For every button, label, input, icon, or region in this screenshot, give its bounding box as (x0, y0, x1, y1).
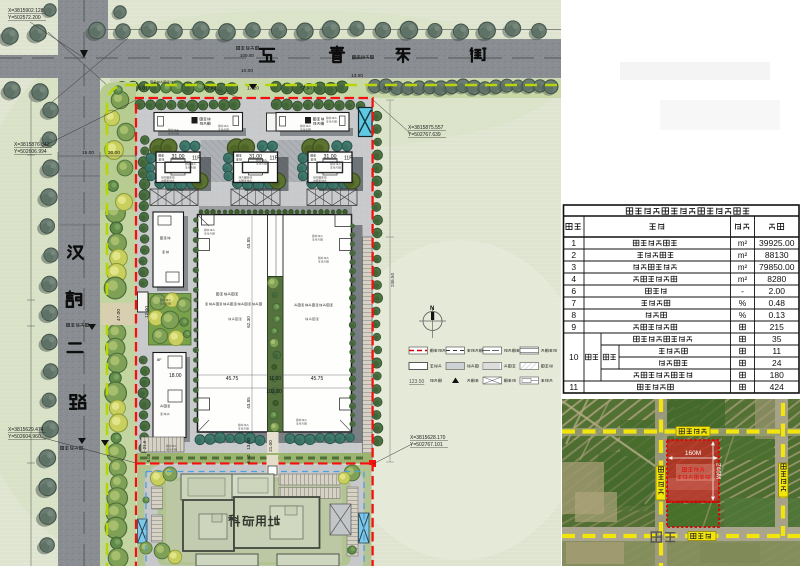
svg-text:8.00: 8.00 (146, 453, 151, 462)
svg-text:160M: 160M (685, 450, 701, 457)
svg-text:%: % (739, 298, 747, 308)
svg-text:8.92: 8.92 (383, 86, 393, 92)
svg-text:%: % (739, 310, 747, 320)
svg-text:Y=502767.639: Y=502767.639 (408, 132, 441, 138)
svg-text:39925.00: 39925.00 (759, 238, 795, 248)
svg-text:11F: 11F (344, 156, 352, 162)
svg-text:8280: 8280 (767, 274, 786, 284)
svg-text:12.00: 12.00 (144, 306, 150, 318)
svg-text:m²: m² (738, 275, 748, 284)
svg-text:13.00: 13.00 (351, 73, 363, 79)
svg-text:24: 24 (772, 358, 782, 368)
svg-text:13.00: 13.00 (246, 438, 251, 450)
svg-text:Y=502572.200: Y=502572.200 (8, 15, 41, 21)
svg-text:X=3815902.128: X=3815902.128 (8, 8, 44, 14)
svg-text:6.00: 6.00 (246, 454, 251, 463)
svg-text:100.00: 100.00 (240, 53, 254, 58)
svg-text:17.20: 17.20 (247, 86, 259, 92)
svg-text:Y=502606.994: Y=502606.994 (14, 149, 47, 155)
svg-text:18.00: 18.00 (169, 373, 182, 379)
svg-text:4: 4 (571, 274, 576, 284)
svg-text:45.75: 45.75 (226, 376, 239, 382)
svg-text:45.75: 45.75 (311, 376, 324, 382)
svg-text:123.50: 123.50 (409, 379, 425, 385)
svg-text:43.85: 43.85 (246, 397, 251, 409)
svg-text:31.00: 31.00 (324, 154, 337, 160)
svg-text:0.13: 0.13 (768, 310, 785, 320)
svg-text:15.00: 15.00 (82, 150, 94, 156)
svg-text:180: 180 (770, 370, 784, 380)
svg-text:424: 424 (770, 382, 784, 392)
svg-text:10: 10 (569, 352, 579, 362)
svg-text:6: 6 (571, 286, 576, 296)
svg-text:2.00: 2.00 (768, 286, 785, 296)
svg-text:8: 8 (571, 310, 576, 320)
svg-text:N: N (430, 306, 434, 312)
svg-text:43.85: 43.85 (246, 237, 251, 249)
svg-text:57.90: 57.90 (204, 86, 216, 92)
svg-text:31.00: 31.00 (172, 154, 185, 160)
svg-text:57.90: 57.90 (300, 86, 312, 92)
svg-text:-: - (741, 286, 744, 296)
svg-text:9: 9 (571, 322, 576, 332)
svg-text:21.6: 21.6 (142, 440, 147, 449)
svg-text:X=3815628.170: X=3815628.170 (410, 435, 446, 441)
svg-text:0.48: 0.48 (768, 298, 785, 308)
svg-text:X=3815876.842: X=3815876.842 (14, 142, 50, 148)
svg-text:m²: m² (738, 239, 748, 248)
svg-text:246M: 246M (715, 463, 722, 479)
svg-text:62.30: 62.30 (246, 316, 251, 328)
svg-text:2: 2 (571, 250, 576, 260)
svg-text:11.00: 11.00 (269, 376, 281, 382)
svg-text:30.00: 30.00 (108, 150, 120, 156)
svg-text:10.00: 10.00 (241, 68, 253, 74)
svg-text:88130: 88130 (765, 250, 789, 260)
svg-text:215: 215 (770, 322, 784, 332)
svg-text:m²: m² (738, 251, 748, 260)
svg-text:5.01: 5.01 (138, 86, 148, 92)
svg-text:11: 11 (772, 346, 781, 356)
svg-text:11F: 11F (270, 156, 278, 162)
svg-text:Y=502604.960: Y=502604.960 (8, 434, 41, 440)
svg-text:8F: 8F (157, 357, 162, 362)
svg-text:79850.00: 79850.00 (759, 262, 795, 272)
svg-text:35: 35 (772, 334, 782, 344)
svg-text:m²: m² (738, 263, 748, 272)
svg-text:11: 11 (569, 382, 578, 392)
svg-text:X=3815629.474: X=3815629.474 (8, 427, 44, 433)
svg-text:47.00: 47.00 (116, 309, 122, 321)
svg-text:3: 3 (571, 262, 576, 272)
svg-text:Y=502767.101: Y=502767.101 (410, 442, 443, 448)
svg-text:X=3815875.557: X=3815875.557 (408, 125, 444, 131)
svg-text:1: 1 (571, 238, 576, 248)
svg-text:246.50: 246.50 (390, 273, 395, 287)
svg-text:7: 7 (571, 298, 576, 308)
svg-text:11F: 11F (192, 156, 200, 162)
svg-text:102.80: 102.80 (266, 389, 282, 395)
svg-text:21.00: 21.00 (268, 440, 273, 452)
